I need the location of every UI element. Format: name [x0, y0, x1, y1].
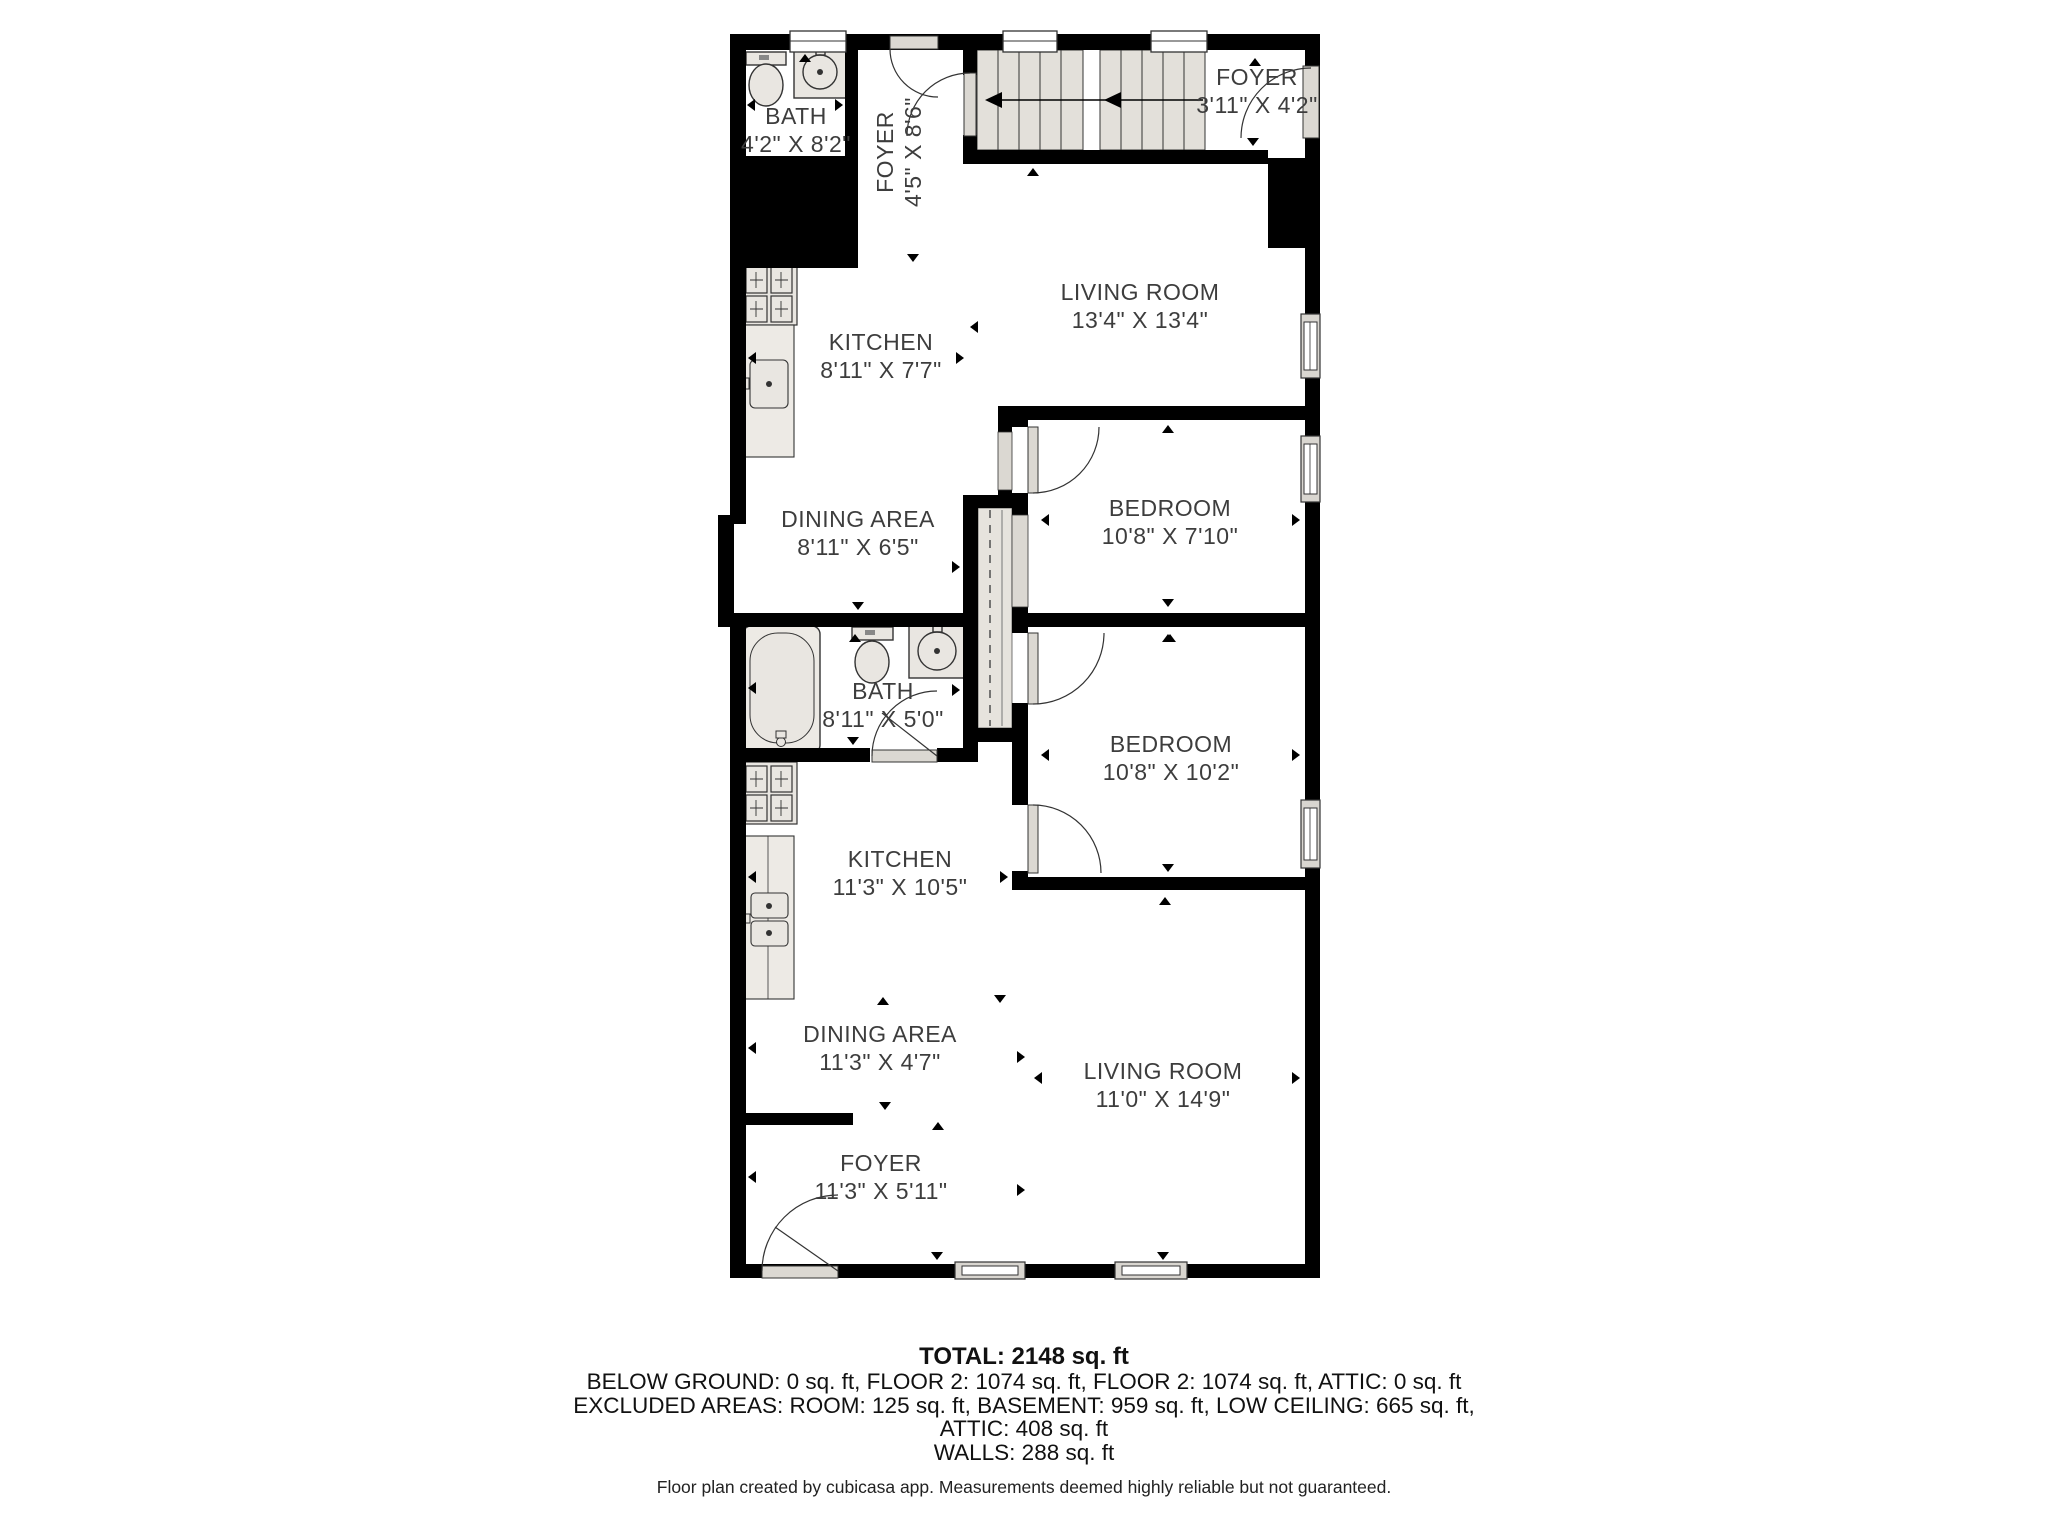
room-label-bedroom-2: BEDROOM10'8" X 10'2"	[1103, 730, 1239, 786]
room-label-bath-mid: BATH8'11" X 5'0"	[822, 677, 943, 733]
room-label-dining-lower: DINING AREA11'3" X 4'7"	[803, 1020, 957, 1076]
room-dims: 4'2" X 8'2"	[741, 130, 851, 158]
room-dims: 11'0" X 14'9"	[1084, 1085, 1243, 1113]
window-icon	[1115, 1262, 1187, 1279]
staircase-icon	[977, 50, 1205, 150]
room-dims: 11'3" X 5'11"	[814, 1177, 947, 1205]
area-breakdown-line4: WALLS: 288 sq. ft	[0, 1441, 2048, 1465]
room-dims: 8'11" X 7'7"	[820, 356, 941, 384]
room-label-living-lower: LIVING ROOM11'0" X 14'9"	[1084, 1057, 1243, 1113]
room-name: DINING AREA	[803, 1020, 957, 1048]
room-label-dining-upper: DINING AREA8'11" X 6'5"	[781, 505, 935, 561]
room-name: FOYER	[871, 97, 899, 207]
area-summary: TOTAL: 2148 sq. ft BELOW GROUND: 0 sq. f…	[0, 1344, 2048, 1498]
door-icon	[1028, 633, 1104, 704]
window-icon	[1301, 436, 1320, 502]
floor-plan-canvas: BATH4'2" X 8'2" FOYER4'5" X 8'6" FOYER3'…	[0, 0, 2048, 1536]
window-icon	[1003, 31, 1057, 52]
room-label-kitchen-lower: KITCHEN11'3" X 10'5"	[833, 845, 968, 901]
room-dims: 11'3" X 10'5"	[833, 873, 968, 901]
room-label-bedroom-1: BEDROOM10'8" X 7'10"	[1102, 494, 1238, 550]
room-label-bath-upper: BATH4'2" X 8'2"	[741, 102, 851, 158]
room-name: LIVING ROOM	[1084, 1057, 1243, 1085]
room-name: KITCHEN	[833, 845, 968, 873]
room-name: BATH	[822, 677, 943, 705]
room-dims: 13'4" X 13'4"	[1061, 306, 1220, 334]
room-label-foyer-top-right: FOYER3'11" X 4'2"	[1196, 63, 1317, 119]
door-panel-icon	[998, 432, 1012, 490]
window-icon	[955, 1262, 1025, 1279]
area-breakdown-line1: BELOW GROUND: 0 sq. ft, FLOOR 2: 1074 sq…	[0, 1370, 2048, 1394]
door-icon	[762, 1195, 838, 1278]
room-dims: 3'11" X 4'2"	[1196, 91, 1317, 119]
door-icon	[890, 36, 938, 97]
room-label-foyer-lower: FOYER11'3" X 5'11"	[814, 1149, 947, 1205]
room-label-foyer-upper: FOYER4'5" X 8'6"	[871, 97, 927, 207]
room-name: KITCHEN	[820, 328, 941, 356]
room-name: DINING AREA	[781, 505, 935, 533]
room-name: FOYER	[1196, 63, 1317, 91]
room-dims: 11'3" X 4'7"	[803, 1048, 957, 1076]
stairwell-strip-icon	[978, 508, 1012, 728]
window-icon	[1301, 800, 1320, 868]
floor-plan-drawing	[0, 0, 2048, 1536]
sink-icon	[909, 622, 968, 678]
room-name: FOYER	[814, 1149, 947, 1177]
room-dims: 8'11" X 5'0"	[822, 705, 943, 733]
stove-icon	[742, 762, 797, 824]
room-name: LIVING ROOM	[1061, 278, 1220, 306]
floor-plan-page: BATH4'2" X 8'2" FOYER4'5" X 8'6" FOYER3'…	[0, 0, 2048, 1536]
door-icon	[1028, 427, 1099, 493]
room-label-kitchen-upper: KITCHEN8'11" X 7'7"	[820, 328, 941, 384]
toilet-icon	[746, 52, 786, 106]
room-dims: 4'5" X 8'6"	[899, 97, 927, 207]
disclaimer-text: Floor plan created by cubicasa app. Meas…	[0, 1477, 2048, 1498]
room-dims: 10'8" X 10'2"	[1103, 758, 1239, 786]
window-icon	[1301, 314, 1320, 378]
sink-icon	[794, 46, 847, 98]
window-icon	[1151, 31, 1207, 52]
window-icon	[790, 31, 846, 52]
room-name: BATH	[741, 102, 851, 130]
area-breakdown-line2: EXCLUDED AREAS: ROOM: 125 sq. ft, BASEME…	[0, 1394, 2048, 1418]
door-panel-icon	[1012, 515, 1028, 607]
door-icon	[1028, 805, 1101, 873]
room-name: BEDROOM	[1102, 494, 1238, 522]
room-label-living-upper: LIVING ROOM13'4" X 13'4"	[1061, 278, 1220, 334]
room-dims: 10'8" X 7'10"	[1102, 522, 1238, 550]
room-name: BEDROOM	[1103, 730, 1239, 758]
room-dims: 8'11" X 6'5"	[781, 533, 935, 561]
area-breakdown-line3: ATTIC: 408 sq. ft	[0, 1417, 2048, 1441]
toilet-icon	[852, 627, 893, 683]
total-area-text: TOTAL: 2148 sq. ft	[0, 1344, 2048, 1370]
stove-icon	[742, 263, 797, 325]
